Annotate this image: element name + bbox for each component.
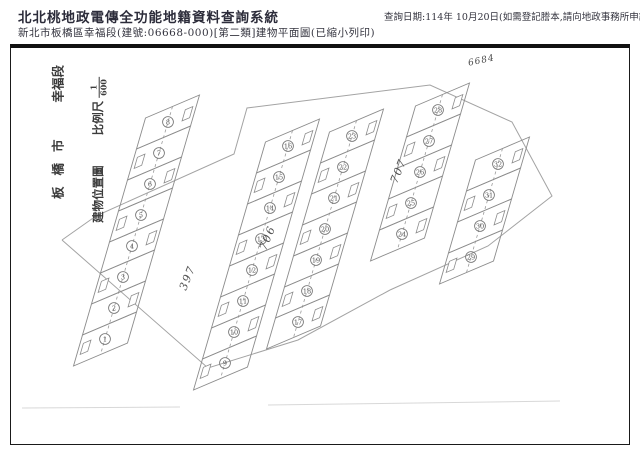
- location-label: 板橋市幸福段: [48, 65, 67, 199]
- unit-number: 3: [121, 273, 125, 281]
- unit-tab: [404, 142, 415, 156]
- unit-tab: [494, 211, 505, 225]
- city-label: 板橋市: [51, 129, 66, 200]
- unit-number: 8: [166, 118, 170, 126]
- unit-tab: [416, 219, 427, 233]
- unit-tab: [312, 307, 323, 321]
- unit-tab: [116, 216, 127, 230]
- section-label: 幸福段: [51, 65, 66, 103]
- unit-number: 23: [348, 132, 356, 140]
- road-lot-number: 707: [388, 157, 410, 186]
- unit-tab: [330, 245, 341, 259]
- unit-number: 19: [312, 256, 320, 264]
- map-title-label: 建物位置圖比例尺1600: [90, 77, 109, 223]
- unit-number: 26: [416, 168, 424, 176]
- unit-tab: [512, 149, 523, 163]
- unit-number: 25: [407, 199, 415, 207]
- unit-number: 29: [467, 253, 475, 261]
- unit-tab: [282, 292, 293, 306]
- unit-tab: [254, 178, 265, 192]
- unit-number: 6: [148, 180, 152, 188]
- unit-tab: [348, 183, 359, 197]
- unit-number: 2: [112, 304, 116, 312]
- unit-number: 17: [294, 318, 302, 326]
- faint-scan-line: [268, 401, 560, 405]
- unit-number: 32: [494, 160, 502, 168]
- unit-tab: [366, 121, 377, 135]
- scale-denominator: 600: [100, 77, 109, 98]
- unit-number: 24: [398, 230, 406, 238]
- faint-scan-line: [22, 407, 180, 408]
- unit-number: 7: [157, 149, 161, 157]
- unit-number: 27: [425, 137, 433, 145]
- unit-tab: [248, 317, 259, 331]
- unit-tab: [318, 168, 329, 182]
- strip-d: 2827262524: [371, 83, 470, 261]
- query-system-page: 北北桃地政電傳全功能地籍資料查詢系統 新北市板橋區幸福段(建號:06668-00…: [0, 0, 640, 453]
- unit-number: 14: [266, 204, 274, 212]
- unit-tab: [164, 169, 175, 183]
- survey-boundary-line: [96, 85, 552, 290]
- strip-e: 32313029: [440, 137, 530, 284]
- unit-tab: [446, 258, 457, 272]
- unit-number: 30: [476, 222, 484, 230]
- unit-tab: [266, 255, 277, 269]
- unit-number: 20: [321, 225, 329, 233]
- unit-number: 28: [434, 106, 442, 114]
- unit-tab: [134, 154, 145, 168]
- unit-tab: [218, 302, 229, 316]
- unit-tab: [452, 95, 463, 109]
- unit-tab: [386, 204, 397, 218]
- unit-tab: [302, 131, 313, 145]
- unit-tab: [236, 240, 247, 254]
- map-title: 建物位置圖: [91, 165, 105, 223]
- floor-plan-drawing: 8765432116151413121110923222120191817282…: [0, 0, 640, 453]
- unit-number: 31: [485, 191, 493, 199]
- unit-tab: [80, 340, 91, 354]
- unit-number: 10: [230, 328, 238, 336]
- unit-number: 12: [248, 266, 256, 274]
- unit-number: 5: [139, 211, 143, 219]
- unit-number: 18: [303, 287, 311, 295]
- road-lot-number: 397: [177, 264, 199, 293]
- unit-number: 1: [103, 335, 107, 343]
- strip-b: 161514131211109: [194, 119, 320, 390]
- unit-number: 9: [223, 359, 227, 367]
- unit-number: 15: [275, 173, 283, 181]
- road-lot-number: 706: [257, 224, 279, 253]
- unit-tab: [98, 278, 109, 292]
- scale-fraction: 1600: [90, 77, 109, 98]
- unit-number: 4: [130, 242, 134, 250]
- unit-tab: [284, 193, 295, 207]
- unit-number: 16: [284, 142, 292, 150]
- unit-number: 21: [330, 194, 338, 202]
- unit-tab: [182, 107, 193, 121]
- unit-tab: [434, 157, 445, 171]
- unit-tab: [464, 196, 475, 210]
- scale-label: 比例尺: [91, 101, 105, 136]
- unit-tab: [300, 230, 311, 244]
- unit-number: 11: [239, 297, 247, 305]
- unit-number: 22: [339, 163, 347, 171]
- unit-tab: [146, 231, 157, 245]
- unit-tab: [200, 364, 211, 378]
